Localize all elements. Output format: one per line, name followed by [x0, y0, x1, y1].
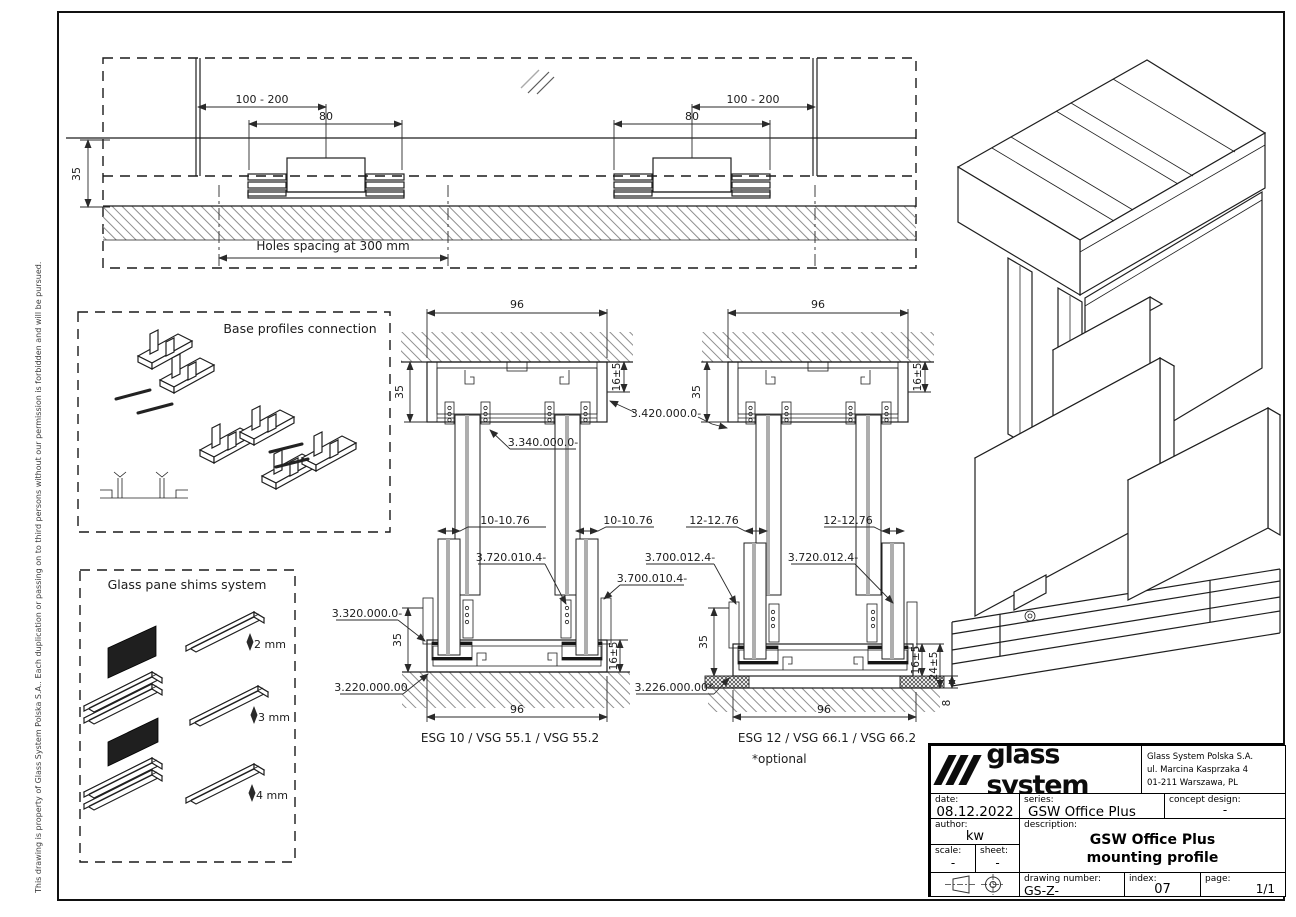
dim-35: 35 [697, 635, 710, 649]
date-cell: date: 08.12.2022 [930, 793, 1020, 819]
section-caption: ESG 10 / VSG 55.1 / VSG 55.2 [421, 731, 599, 745]
part-label-gasket-10: 3.700.010.4- [617, 572, 687, 585]
scale-value: - [931, 856, 975, 870]
part-label-gasket: 3.700.012.4- [645, 551, 715, 564]
company-line-3: 01-211 Warszawa, PL [1147, 777, 1285, 790]
part-label-seal: 3.720.012.4- [788, 551, 858, 564]
dim-16: 16±5 [611, 363, 623, 392]
shim-size-3mm: 3 mm [258, 711, 290, 724]
optional-note: *optional [752, 752, 807, 766]
shim-size-4mm: 4 mm [256, 789, 288, 802]
series-cell: series: GSW Office Plus [1019, 793, 1165, 819]
base-profiles-box: Base profiles connection [78, 312, 390, 532]
author-cell: author: kw [930, 818, 1020, 845]
dim-80-left: 80 [319, 110, 333, 123]
drawing-number-cell: drawing number: GS-Z-3.20.00.00 [1019, 872, 1125, 897]
property-notice: This drawing is property of Glass System… [34, 193, 43, 893]
base-profiles-title: Base profiles connection [223, 321, 376, 336]
dim-35: 35 [393, 385, 406, 399]
holes-spacing-note: Holes spacing at 300 mm [256, 239, 409, 253]
section-caption: ESG 12 / VSG 66.1 / VSG 66.2 [738, 731, 916, 745]
base-profile-section-icon [100, 472, 188, 498]
part-label-cover: 3.420.000.0- [631, 407, 701, 420]
company-line-2: ul. Marcina Kasprzaka 4 [1147, 764, 1285, 777]
dim-16: 16±5 [910, 646, 922, 675]
description-cell: description: GSW Office Plus mounting pr… [1019, 818, 1286, 873]
series-value: GSW Office Plus [1020, 804, 1164, 819]
dim-wall-35: 35 [70, 167, 83, 181]
top-plan-view: 100 - 200 80 100 - 200 80 35 Holes spaci… [66, 58, 916, 268]
shims-title: Glass pane shims system [108, 577, 267, 592]
section-floor-left: 10-10.76 10-10.76 3.720.010.4- 3.320.000… [332, 514, 654, 745]
title-block: glass system Glass System Polska S.A. ul… [928, 743, 1284, 897]
bracket-assembly-left [248, 158, 404, 198]
company-address: Glass System Polska S.A. ul. Marcina Kas… [1141, 745, 1286, 794]
dim-glass-b: 10-10.76 [603, 514, 652, 527]
part-label-pad: 3.226.000.00* [635, 681, 714, 694]
dim-range-left: 100 - 200 [236, 93, 289, 106]
projection-symbol-icon [931, 873, 1019, 896]
part-label-profile: 3.320.000.0- [332, 607, 402, 620]
index-cell: index: 07 [1124, 872, 1201, 897]
description-line-1: GSW Office Plus [1020, 832, 1285, 850]
dim-glass-b: 12-12.76 [823, 514, 872, 527]
drawing-number-value: GS-Z-3.20.00.00 [1020, 883, 1124, 897]
dim-glass-a: 10-10.76 [480, 514, 529, 527]
dim-96: 96 [510, 703, 524, 716]
sheet-value: - [976, 856, 1019, 870]
dim-96: 96 [817, 703, 831, 716]
part-label-seal: 3.720.010.4- [476, 551, 546, 564]
scale-label: scale: [931, 845, 975, 856]
logo-cell: glass system [930, 745, 1142, 794]
shim-assembly-2 [84, 718, 162, 810]
dim-24: 24±5 [928, 652, 940, 681]
index-value: 07 [1125, 882, 1200, 897]
part-label-base: 3.220.000.00 [334, 681, 407, 694]
dim-8: 8 [941, 700, 953, 707]
sheet-cell: sheet: - [975, 844, 1020, 873]
concept-design-value: - [1165, 803, 1285, 817]
dim-glass-a: 12-12.76 [689, 514, 738, 527]
scale-cell: scale: - [930, 844, 976, 873]
author-value: kw [931, 829, 1019, 844]
date-value: 08.12.2022 [931, 804, 1019, 819]
company-line-1: Glass System Polska S.A. [1147, 751, 1285, 764]
bracket-assembly-right [614, 158, 770, 198]
dim-96: 96 [811, 298, 825, 311]
dim-range-right: 100 - 200 [727, 93, 780, 106]
shim-assembly-1 [84, 626, 162, 724]
description-line-2: mounting profile [1020, 850, 1285, 868]
dim-96: 96 [510, 298, 524, 311]
projection-symbol-cell [930, 872, 1020, 897]
shims-box: Glass pane shims system 2 mm 3 mm 4 mm [80, 570, 295, 862]
shim-size-2mm: 2 mm [254, 638, 286, 651]
dim-35: 35 [690, 385, 703, 399]
dim-35: 35 [391, 633, 404, 647]
part-label-track: 3.340.000.0- [508, 436, 578, 449]
sheet-label: sheet: [976, 845, 1019, 856]
concept-design-cell: concept design: - [1164, 793, 1286, 819]
glass-symbol [521, 70, 554, 94]
dim-16: 16±5 [608, 642, 620, 671]
logo-wordmark: glass system [986, 745, 1141, 794]
dim-16: 16±5 [912, 363, 924, 392]
description-label: description: [1020, 819, 1285, 830]
dim-80-right: 80 [685, 110, 699, 123]
page-value: 1/1 [1201, 882, 1285, 896]
page-cell: page: 1/1 [1200, 872, 1286, 897]
